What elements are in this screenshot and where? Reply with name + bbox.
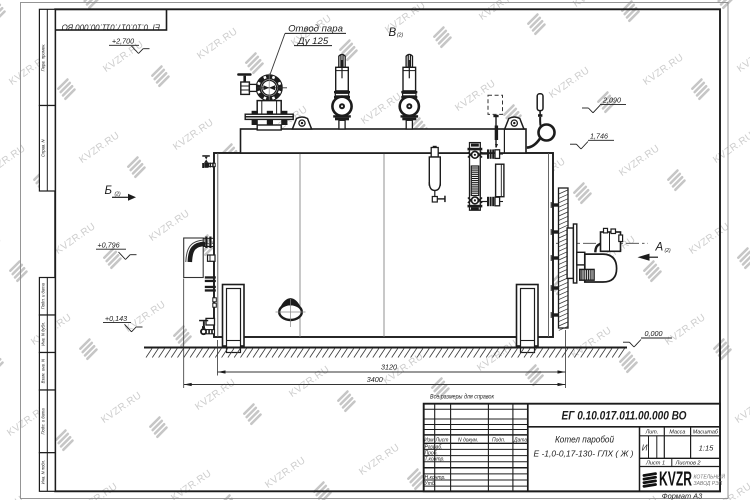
svg-text:Т.контр.: Т.контр. [425,457,445,463]
svg-text:Дата: Дата [513,438,527,444]
svg-text:Формат А3: Формат А3 [662,492,703,500]
svg-text:1,746: 1,746 [590,131,608,140]
svg-text:2,090: 2,090 [602,96,621,105]
svg-text:А: А [655,242,664,254]
svg-text:Отвод пара: Отвод пара [288,24,343,35]
svg-text:Подп.: Подп. [492,438,505,444]
svg-text:В: В [389,27,397,39]
svg-text:Перв. примен.: Перв. примен. [41,43,46,71]
svg-text:Масса: Масса [669,430,685,436]
svg-text:Подп. и дата: Подп. и дата [41,408,46,435]
svg-text:Инв. N подл.: Инв. N подл. [41,460,46,484]
svg-text:Подп. и дата: Подп. и дата [41,282,46,309]
svg-text:Е -1,0-0,17-130- ГЛХ ( Ж ): Е -1,0-0,17-130- ГЛХ ( Ж ) [534,449,634,459]
svg-text:Взам. инв. N: Взам. инв. N [41,358,46,383]
svg-text:+0,796: +0,796 [97,240,119,249]
svg-text:Б: Б [105,185,113,197]
svg-text:Все размеры для справок: Все размеры для справок [430,392,495,400]
svg-text:Лист: Лист [435,438,449,444]
svg-text:Масштаб: Масштаб [693,430,719,436]
svg-text:ЗАВОД РЭП: ЗАВОД РЭП [694,481,723,487]
svg-text:Проб.: Проб. [425,451,438,457]
svg-text:KVZR: KVZR [659,468,692,491]
svg-text:(2): (2) [665,248,671,254]
svg-text:Утб.: Утб. [425,481,437,487]
svg-text:Котел паробой: Котел паробой [555,435,614,445]
svg-text:N докум.: N докум. [458,438,478,444]
svg-text:И: И [642,444,648,453]
svg-text:Справ. N: Справ. N [41,138,46,156]
svg-text:Лит.: Лит. [645,430,659,436]
svg-text:3400: 3400 [367,375,383,384]
svg-text:(2): (2) [115,192,121,198]
svg-text:+2,700: +2,700 [112,37,134,46]
svg-text:+0,143: +0,143 [105,314,127,323]
svg-text:Изм: Изм [424,438,434,444]
svg-text:(2): (2) [397,33,403,39]
svg-text:ЕГ 0.10.017.011.00.000 ВО: ЕГ 0.10.017.011.00.000 ВО [62,23,160,32]
svg-text:1:15: 1:15 [699,443,715,452]
svg-text:КОТЕЛЬНЫЙ: КОТЕЛЬНЫЙ [694,473,726,481]
svg-text:Лист 1: Лист 1 [645,461,665,467]
svg-text:Листов 2: Листов 2 [675,461,702,467]
svg-text:3120: 3120 [381,362,397,371]
svg-text:0,000: 0,000 [645,329,663,338]
svg-text:Инв. N дубл.: Инв. N дубл. [41,322,46,346]
svg-text:ЕГ 0.10.017.011.00.000 ВО: ЕГ 0.10.017.011.00.000 ВО [562,409,687,423]
svg-text:Разраб.: Разраб. [425,444,443,450]
